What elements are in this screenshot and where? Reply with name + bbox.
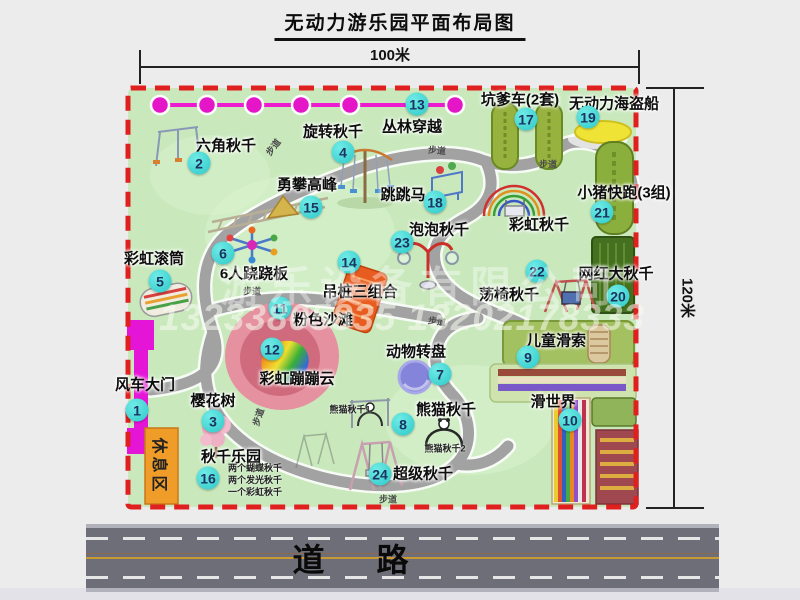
- walkway-label-1: 步道: [427, 143, 446, 158]
- attraction-label-23: 泡泡秋千: [409, 219, 469, 240]
- attraction-badge-24: 24: [369, 463, 392, 486]
- attraction-badge-12: 12: [261, 338, 284, 361]
- attraction-badge-7: 7: [429, 363, 452, 386]
- attraction-label-24: 超级秋千: [393, 463, 453, 484]
- attraction-badge-8: 8: [392, 413, 415, 436]
- attraction-badge-21: 21: [591, 201, 614, 224]
- watermark-phone: 13233805835 13202178333: [159, 297, 645, 339]
- attraction-badge-10: 10: [559, 409, 582, 432]
- swing-paradise-note-line: 两个蝴蝶秋千: [228, 462, 282, 474]
- attraction-badge-2: 2: [188, 152, 211, 175]
- swing-paradise-note-line: 两个发光秋千: [228, 474, 282, 486]
- page-title: 无动力游乐园平面布局图: [274, 8, 525, 41]
- attraction-label-12: 彩虹蹦蹦云: [259, 368, 334, 389]
- sub-label-1: 熊猫秋千2: [424, 442, 465, 455]
- attraction-label-1: 风车大门: [115, 374, 175, 395]
- attraction-badge-4: 4: [332, 141, 355, 164]
- plan-canvas: 无动力游乐园平面布局图 100米 120米 风车大门1六角秋千2樱花树3旋转秋千…: [0, 0, 800, 600]
- attraction-label-18: 跳跳马: [380, 184, 425, 205]
- attraction-badge-17: 17: [515, 108, 538, 131]
- swing-paradise-note-line: 一个彩虹秋千: [228, 486, 282, 498]
- attraction-label-7: 动物转盘: [386, 341, 446, 362]
- attraction-label-3: 樱花树: [190, 390, 235, 411]
- attraction-label-8: 熊猫秋千: [416, 399, 476, 420]
- attraction-label-17: 坑爹车(2套): [481, 89, 559, 110]
- attraction-badge-16: 16: [197, 467, 220, 490]
- dimension-height-label: 120米: [678, 278, 699, 318]
- rest-area-label: 休息区: [149, 437, 173, 494]
- walkway-label-2: 步道: [539, 158, 557, 171]
- attraction-label-13: 丛林穿越: [382, 116, 442, 137]
- attraction-badge-13: 13: [406, 93, 429, 116]
- attraction-badge-3: 3: [202, 410, 225, 433]
- attraction-badge-23: 23: [391, 231, 414, 254]
- attraction-badge-9: 9: [517, 346, 540, 369]
- attraction-label-15: 勇攀高峰: [277, 174, 337, 195]
- dimension-width-label: 100米: [370, 44, 410, 65]
- walkway-label-5: 步道: [249, 406, 267, 427]
- attraction-badge-18: 18: [424, 191, 447, 214]
- attraction-badge-19: 19: [577, 106, 600, 129]
- map-label-0: 彩虹秋千: [509, 214, 569, 235]
- attraction-badge-5: 5: [149, 270, 172, 293]
- attraction-label-4: 旋转秋千: [303, 121, 363, 142]
- walkway-label-6: 步道: [379, 493, 397, 506]
- sub-label-0: 熊猫秋千1: [329, 403, 370, 416]
- attraction-label-5: 彩虹滚筒: [124, 248, 184, 269]
- attraction-badge-15: 15: [300, 196, 323, 219]
- attraction-label-21: 小猪快跑(3组): [577, 182, 670, 203]
- swing-paradise-notes: 两个蝴蝶秋千两个发光秋千一个彩虹秋千: [228, 462, 282, 498]
- walkway-label-0: 步道: [262, 136, 283, 158]
- attraction-badge-1: 1: [126, 399, 149, 422]
